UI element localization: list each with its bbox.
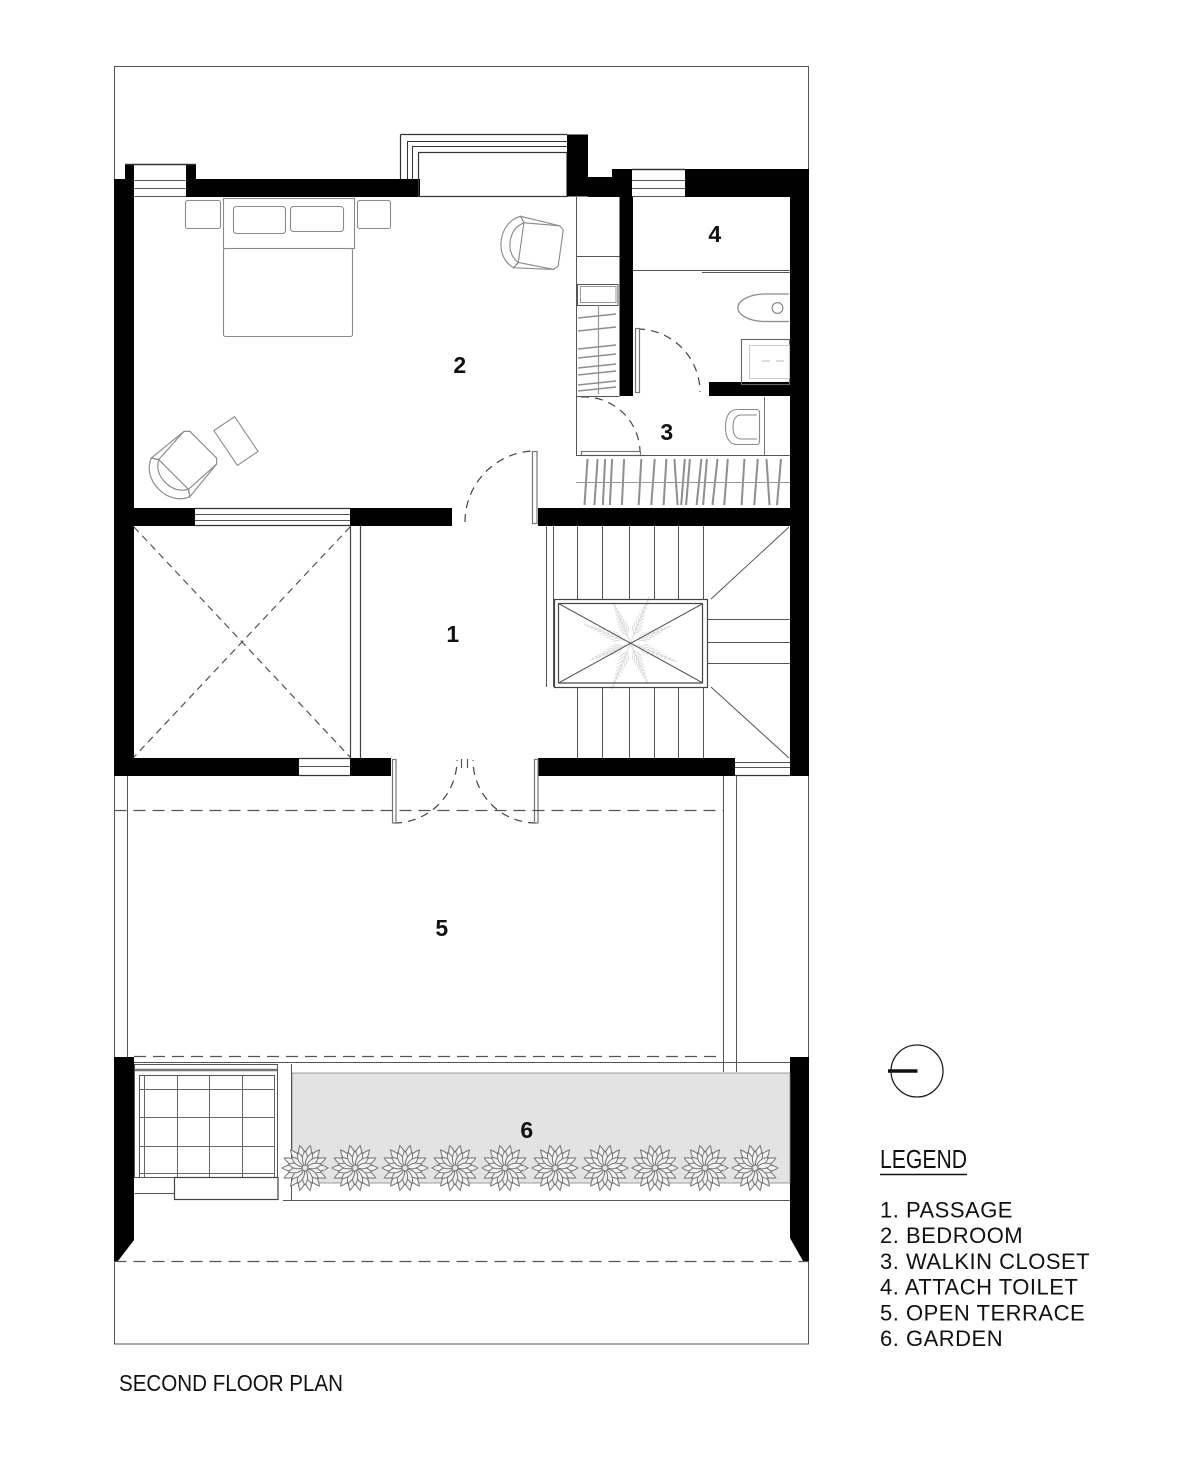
svg-text:2: 2 [453,352,466,378]
svg-text:4. ATTACH TOILET: 4. ATTACH TOILET [880,1275,1078,1300]
svg-text:SECOND FLOOR PLAN: SECOND FLOOR PLAN [119,1370,343,1396]
svg-text:6. GARDEN: 6. GARDEN [880,1326,1003,1351]
svg-text:4: 4 [708,221,721,247]
svg-text:1: 1 [446,621,459,647]
svg-text:5: 5 [435,915,448,941]
svg-text:3. WALKIN CLOSET: 3. WALKIN CLOSET [880,1249,1090,1274]
svg-text:5. OPEN TERRACE: 5. OPEN TERRACE [880,1300,1085,1325]
svg-text:2. BEDROOM: 2. BEDROOM [880,1223,1023,1248]
svg-text:1. PASSAGE: 1. PASSAGE [880,1198,1013,1223]
svg-text:6: 6 [520,1117,533,1143]
svg-text:LEGEND: LEGEND [880,1144,967,1174]
svg-text:3: 3 [660,419,673,445]
